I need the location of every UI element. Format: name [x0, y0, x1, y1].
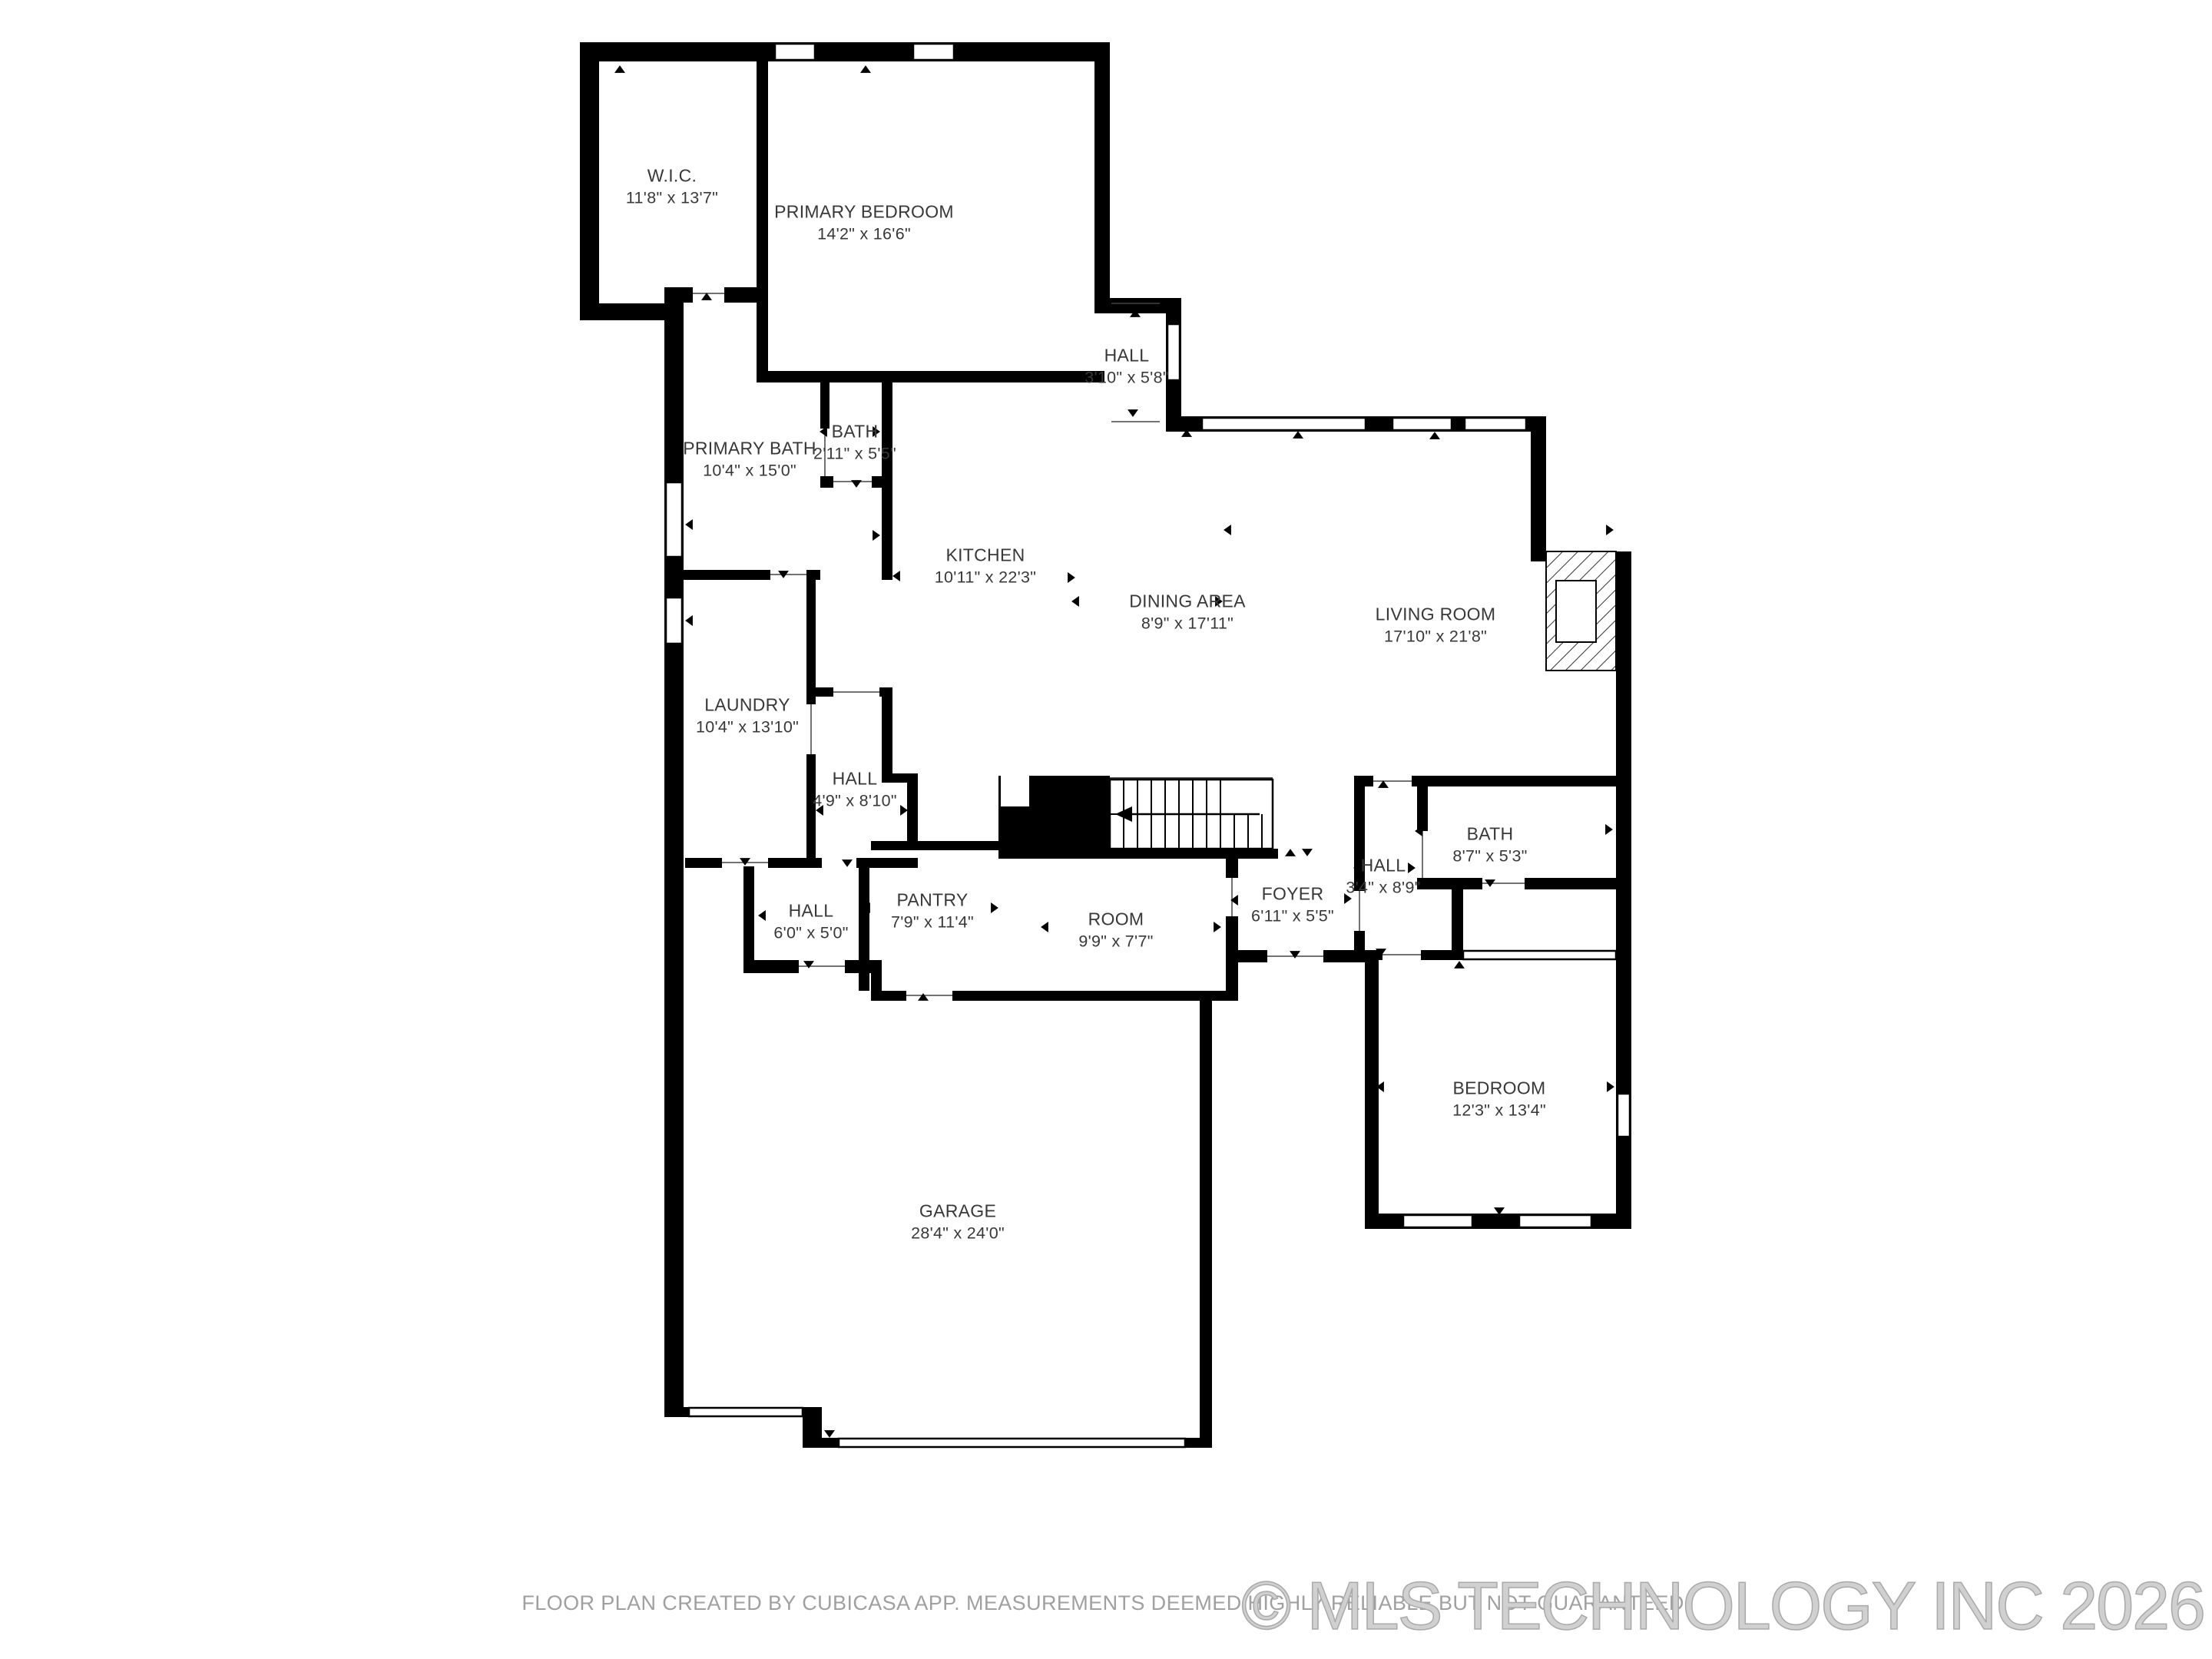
- mls-watermark: © MLS TECHNOLOGY INC 2026: [1241, 1567, 2204, 1645]
- room-name: W.I.C.: [626, 164, 718, 187]
- room-name: PANTRY: [891, 889, 974, 912]
- room-label-hall-upper: HALL3'10" x 5'8": [1084, 344, 1169, 389]
- room-dimensions: 2'11" x 5'5": [813, 443, 896, 465]
- room-dimensions: 6'0" x 5'0": [773, 922, 848, 944]
- room-label-hall-lower: HALL6'0" x 5'0": [773, 899, 848, 945]
- room-label-hall-mid: HALL4'9" x 8'10": [813, 767, 897, 813]
- room-dimensions: 6'11" x 5'5": [1251, 906, 1334, 927]
- room-label-primary-bath: PRIMARY BATH10'4" x 15'0": [683, 437, 816, 482]
- room-label-hall-entry: HALL3'4" x 8'9": [1346, 854, 1420, 899]
- room-name: BATH: [813, 420, 896, 443]
- room-label-foyer: FOYER6'11" x 5'5": [1251, 882, 1334, 928]
- room-dimensions: 17'10" x 21'8": [1376, 626, 1496, 647]
- room-name: HALL: [1084, 344, 1169, 367]
- room-label-garage: GARAGE28'4" x 24'0": [911, 1200, 1005, 1245]
- room-label-wic: W.I.C.11'8" x 13'7": [626, 164, 718, 210]
- room-dimensions: 8'7" x 5'3": [1452, 846, 1527, 867]
- room-label-kitchen: KITCHEN10'11" x 22'3": [935, 544, 1036, 589]
- room-dimensions: 14'2" x 16'6": [774, 224, 954, 245]
- room-label-room: ROOM9'9" x 7'7": [1078, 908, 1153, 953]
- room-labels-layer: W.I.C.11'8" x 13'7"PRIMARY BEDROOM14'2" …: [0, 0, 2212, 1659]
- room-label-bath-small: BATH2'11" x 5'5": [813, 420, 896, 465]
- room-dimensions: 10'4" x 15'0": [683, 460, 816, 482]
- room-dimensions: 8'9" x 17'11": [1129, 613, 1246, 634]
- room-name: HALL: [1346, 854, 1420, 877]
- room-name: LAUNDRY: [696, 694, 799, 717]
- room-dimensions: 10'4" x 13'10": [696, 717, 799, 738]
- room-name: LIVING ROOM: [1376, 603, 1496, 626]
- room-dimensions: 28'4" x 24'0": [911, 1223, 1005, 1244]
- room-label-bath-main: BATH8'7" x 5'3": [1452, 823, 1527, 868]
- room-dimensions: 3'4" x 8'9": [1346, 877, 1420, 899]
- room-name: FOYER: [1251, 882, 1334, 906]
- room-name: ROOM: [1078, 908, 1153, 931]
- room-dimensions: 10'11" x 22'3": [935, 567, 1036, 588]
- room-name: HALL: [773, 899, 848, 922]
- room-dimensions: 12'3" x 13'4": [1452, 1100, 1546, 1121]
- room-name: GARAGE: [911, 1200, 1005, 1223]
- room-label-primary-bedroom: PRIMARY BEDROOM14'2" x 16'6": [774, 200, 954, 246]
- room-name: PRIMARY BEDROOM: [774, 200, 954, 224]
- room-name: BATH: [1452, 823, 1527, 846]
- room-label-dining-area: DINING AREA8'9" x 17'11": [1129, 590, 1246, 635]
- room-dimensions: 3'10" x 5'8": [1084, 367, 1169, 389]
- floorplan-page: W.I.C.11'8" x 13'7"PRIMARY BEDROOM14'2" …: [0, 0, 2212, 1659]
- room-name: DINING AREA: [1129, 590, 1246, 613]
- room-label-bedroom: BEDROOM12'3" x 13'4": [1452, 1077, 1546, 1122]
- room-name: KITCHEN: [935, 544, 1036, 567]
- room-name: PRIMARY BATH: [683, 437, 816, 460]
- room-name: BEDROOM: [1452, 1077, 1546, 1100]
- room-dimensions: 7'9" x 11'4": [891, 912, 974, 933]
- room-dimensions: 4'9" x 8'10": [813, 790, 897, 812]
- room-dimensions: 11'8" x 13'7": [626, 187, 718, 209]
- room-dimensions: 9'9" x 7'7": [1078, 931, 1153, 952]
- room-label-pantry: PANTRY7'9" x 11'4": [891, 889, 974, 934]
- room-label-living-room: LIVING ROOM17'10" x 21'8": [1376, 603, 1496, 648]
- room-name: HALL: [813, 767, 897, 790]
- room-label-laundry: LAUNDRY10'4" x 13'10": [696, 694, 799, 739]
